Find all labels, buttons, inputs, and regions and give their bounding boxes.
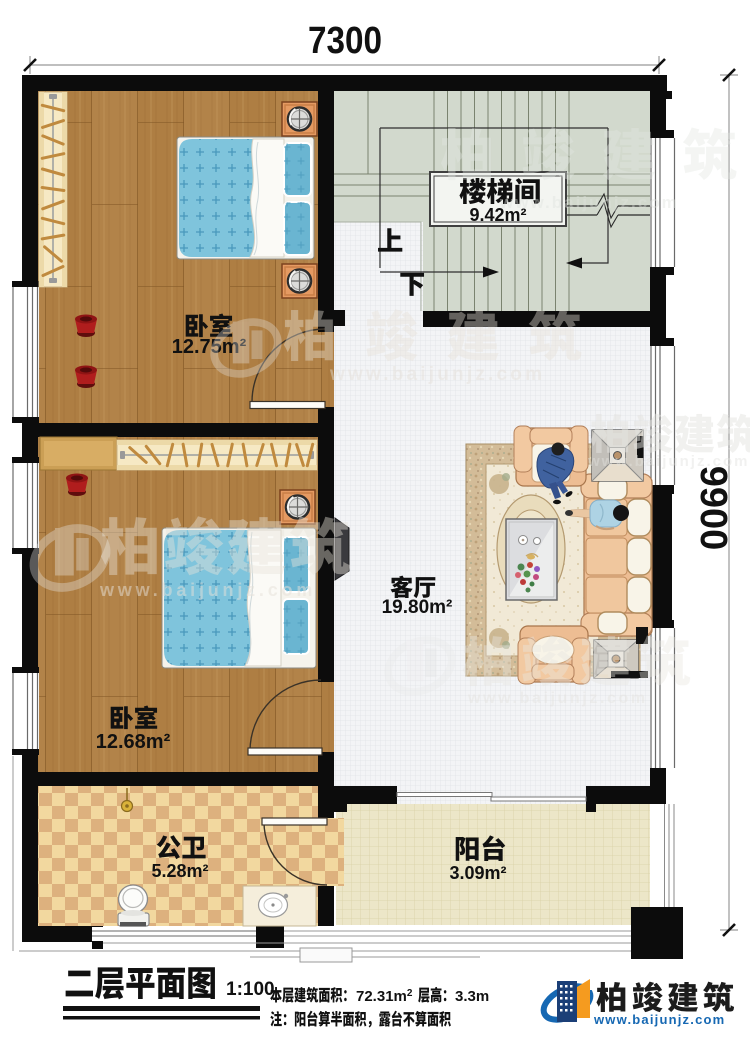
svg-text:5.28m²: 5.28m² [151,861,208,881]
svg-text:www.baijunjz.com: www.baijunjz.com [593,1012,725,1027]
svg-text:www.baijunjz.com: www.baijunjz.com [467,690,648,707]
svg-text:19.80m²: 19.80m² [382,597,453,618]
svg-text:3.09m²: 3.09m² [449,863,506,883]
svg-text:www.baijunjz.com: www.baijunjz.com [587,453,749,470]
svg-text:9900: 9900 [692,466,734,551]
svg-text:7300: 7300 [308,20,382,62]
svg-text:3.3m: 3.3m [455,988,489,1005]
svg-text:www.baijunjz.com: www.baijunjz.com [499,193,679,212]
svg-text:www.baijunjz.com: www.baijunjz.com [99,580,316,600]
svg-text:72.31m2: 72.31m2 [356,988,413,1005]
svg-text:12.68m²: 12.68m² [96,731,171,753]
svg-text:1:100: 1:100 [226,979,275,1000]
svg-text:www.baijunjz.com: www.baijunjz.com [329,364,545,385]
